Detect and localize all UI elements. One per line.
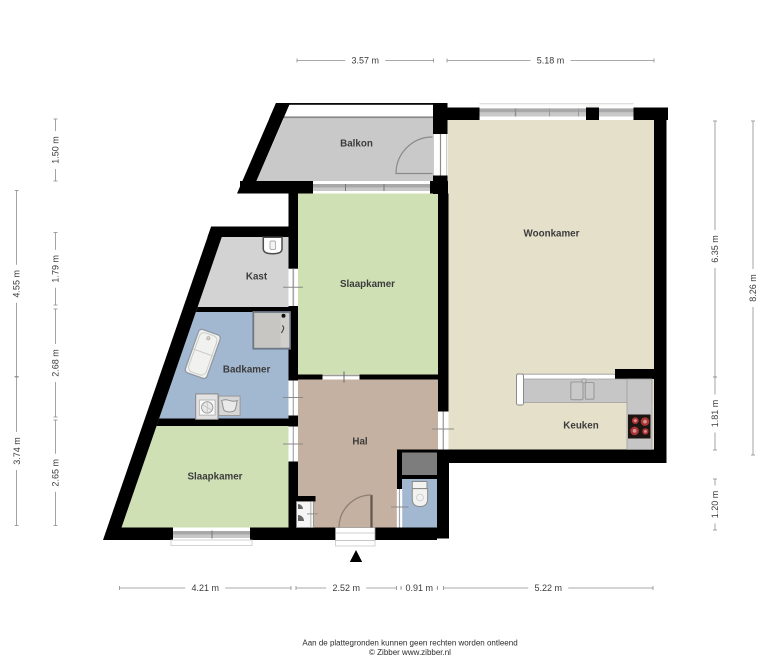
svg-text:© Zibber www.zibber.nl: © Zibber www.zibber.nl [369, 648, 451, 657]
svg-text:Slaapkamer: Slaapkamer [340, 279, 395, 290]
svg-text:Keuken: Keuken [563, 421, 598, 432]
svg-text:5.18 m: 5.18 m [537, 56, 565, 66]
svg-text:Balkon: Balkon [340, 139, 373, 150]
svg-text:0.91 m: 0.91 m [405, 583, 433, 593]
svg-text:6.35 m: 6.35 m [710, 235, 720, 263]
svg-text:Badkamer: Badkamer [223, 365, 271, 376]
svg-text:2.68 m: 2.68 m [51, 349, 61, 377]
svg-text:2.52 m: 2.52 m [332, 583, 360, 593]
svg-text:1.50 m: 1.50 m [51, 136, 61, 164]
svg-text:4.21 m: 4.21 m [191, 583, 219, 593]
svg-text:3.74 m: 3.74 m [12, 437, 22, 465]
svg-text:5.22 m: 5.22 m [534, 583, 562, 593]
svg-text:Woonkamer: Woonkamer [524, 228, 580, 239]
svg-text:Hal: Hal [352, 437, 368, 448]
svg-text:1.20 m: 1.20 m [710, 491, 720, 519]
svg-text:4.55 m: 4.55 m [12, 270, 22, 298]
svg-text:3.57 m: 3.57 m [351, 56, 379, 66]
svg-text:1.81 m: 1.81 m [710, 400, 720, 428]
svg-text:2.65 m: 2.65 m [51, 459, 61, 487]
svg-text:Slaapkamer: Slaapkamer [187, 472, 242, 483]
svg-text:8.26 m: 8.26 m [748, 274, 758, 302]
svg-text:Aan de plattegronden kunnen ge: Aan de plattegronden kunnen geen rechten… [302, 639, 517, 648]
svg-text:1.79 m: 1.79 m [51, 255, 61, 283]
svg-text:Kast: Kast [246, 271, 268, 282]
